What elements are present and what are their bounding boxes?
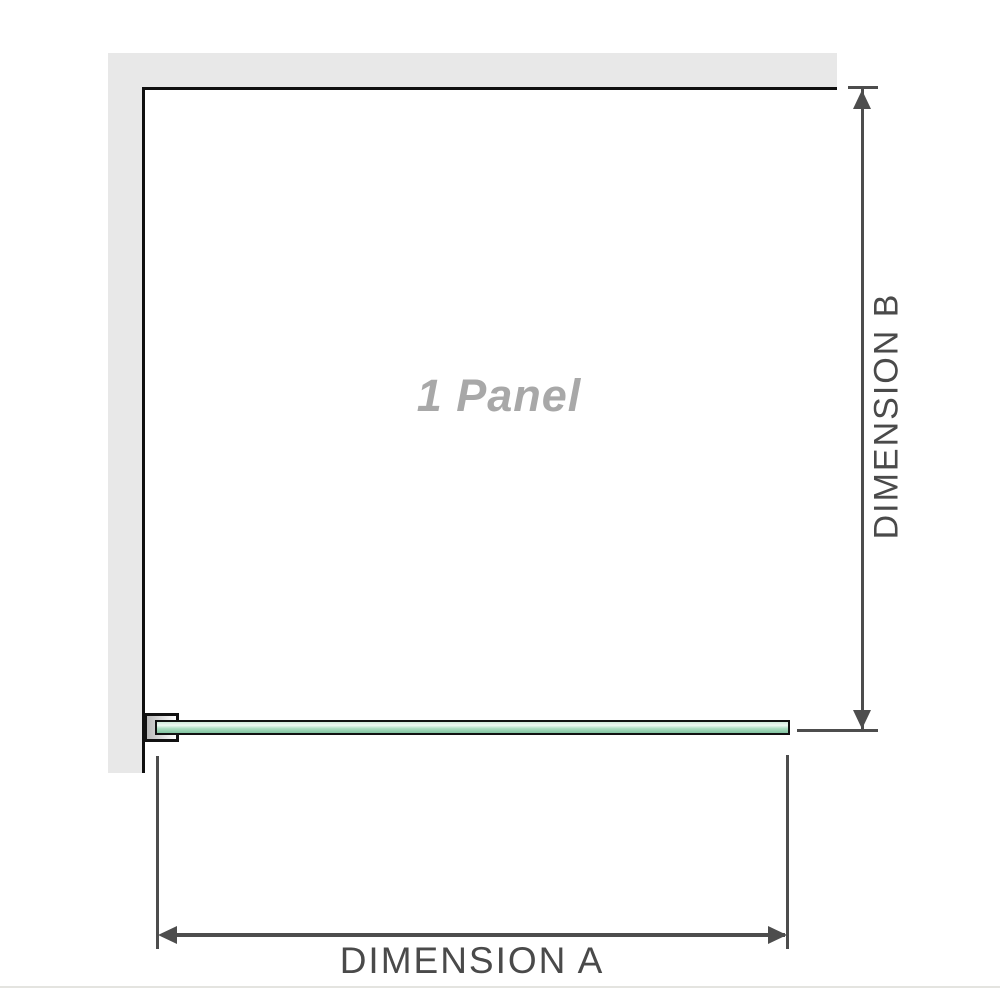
dim-b-label: DIMENSION B — [868, 293, 907, 540]
top-wall — [108, 53, 837, 87]
dim-b-bottom-tick — [797, 729, 878, 732]
dim-b-arrow-down-icon — [853, 710, 871, 729]
dim-b-line — [861, 89, 864, 730]
image-bottom-divider — [0, 986, 1000, 988]
side-wall — [108, 53, 142, 773]
dim-a-label: DIMENSION A — [340, 940, 605, 982]
dim-a-arrow-left-icon — [158, 926, 177, 944]
dim-b-arrow-up-icon — [853, 90, 871, 109]
panel-count-label: 1 Panel — [417, 370, 582, 422]
dim-a-right-extension — [786, 755, 789, 949]
side-wall-inner-edge — [142, 87, 145, 773]
shower-panel-diagram: 1 Panel DIMENSION B DIMENSION A — [0, 0, 1000, 1000]
dim-a-arrow-right-icon — [768, 926, 787, 944]
dim-a-left-extension — [156, 756, 159, 949]
glass-panel — [155, 720, 790, 735]
dim-a-line — [162, 933, 785, 937]
top-wall-inner-edge — [142, 87, 837, 90]
